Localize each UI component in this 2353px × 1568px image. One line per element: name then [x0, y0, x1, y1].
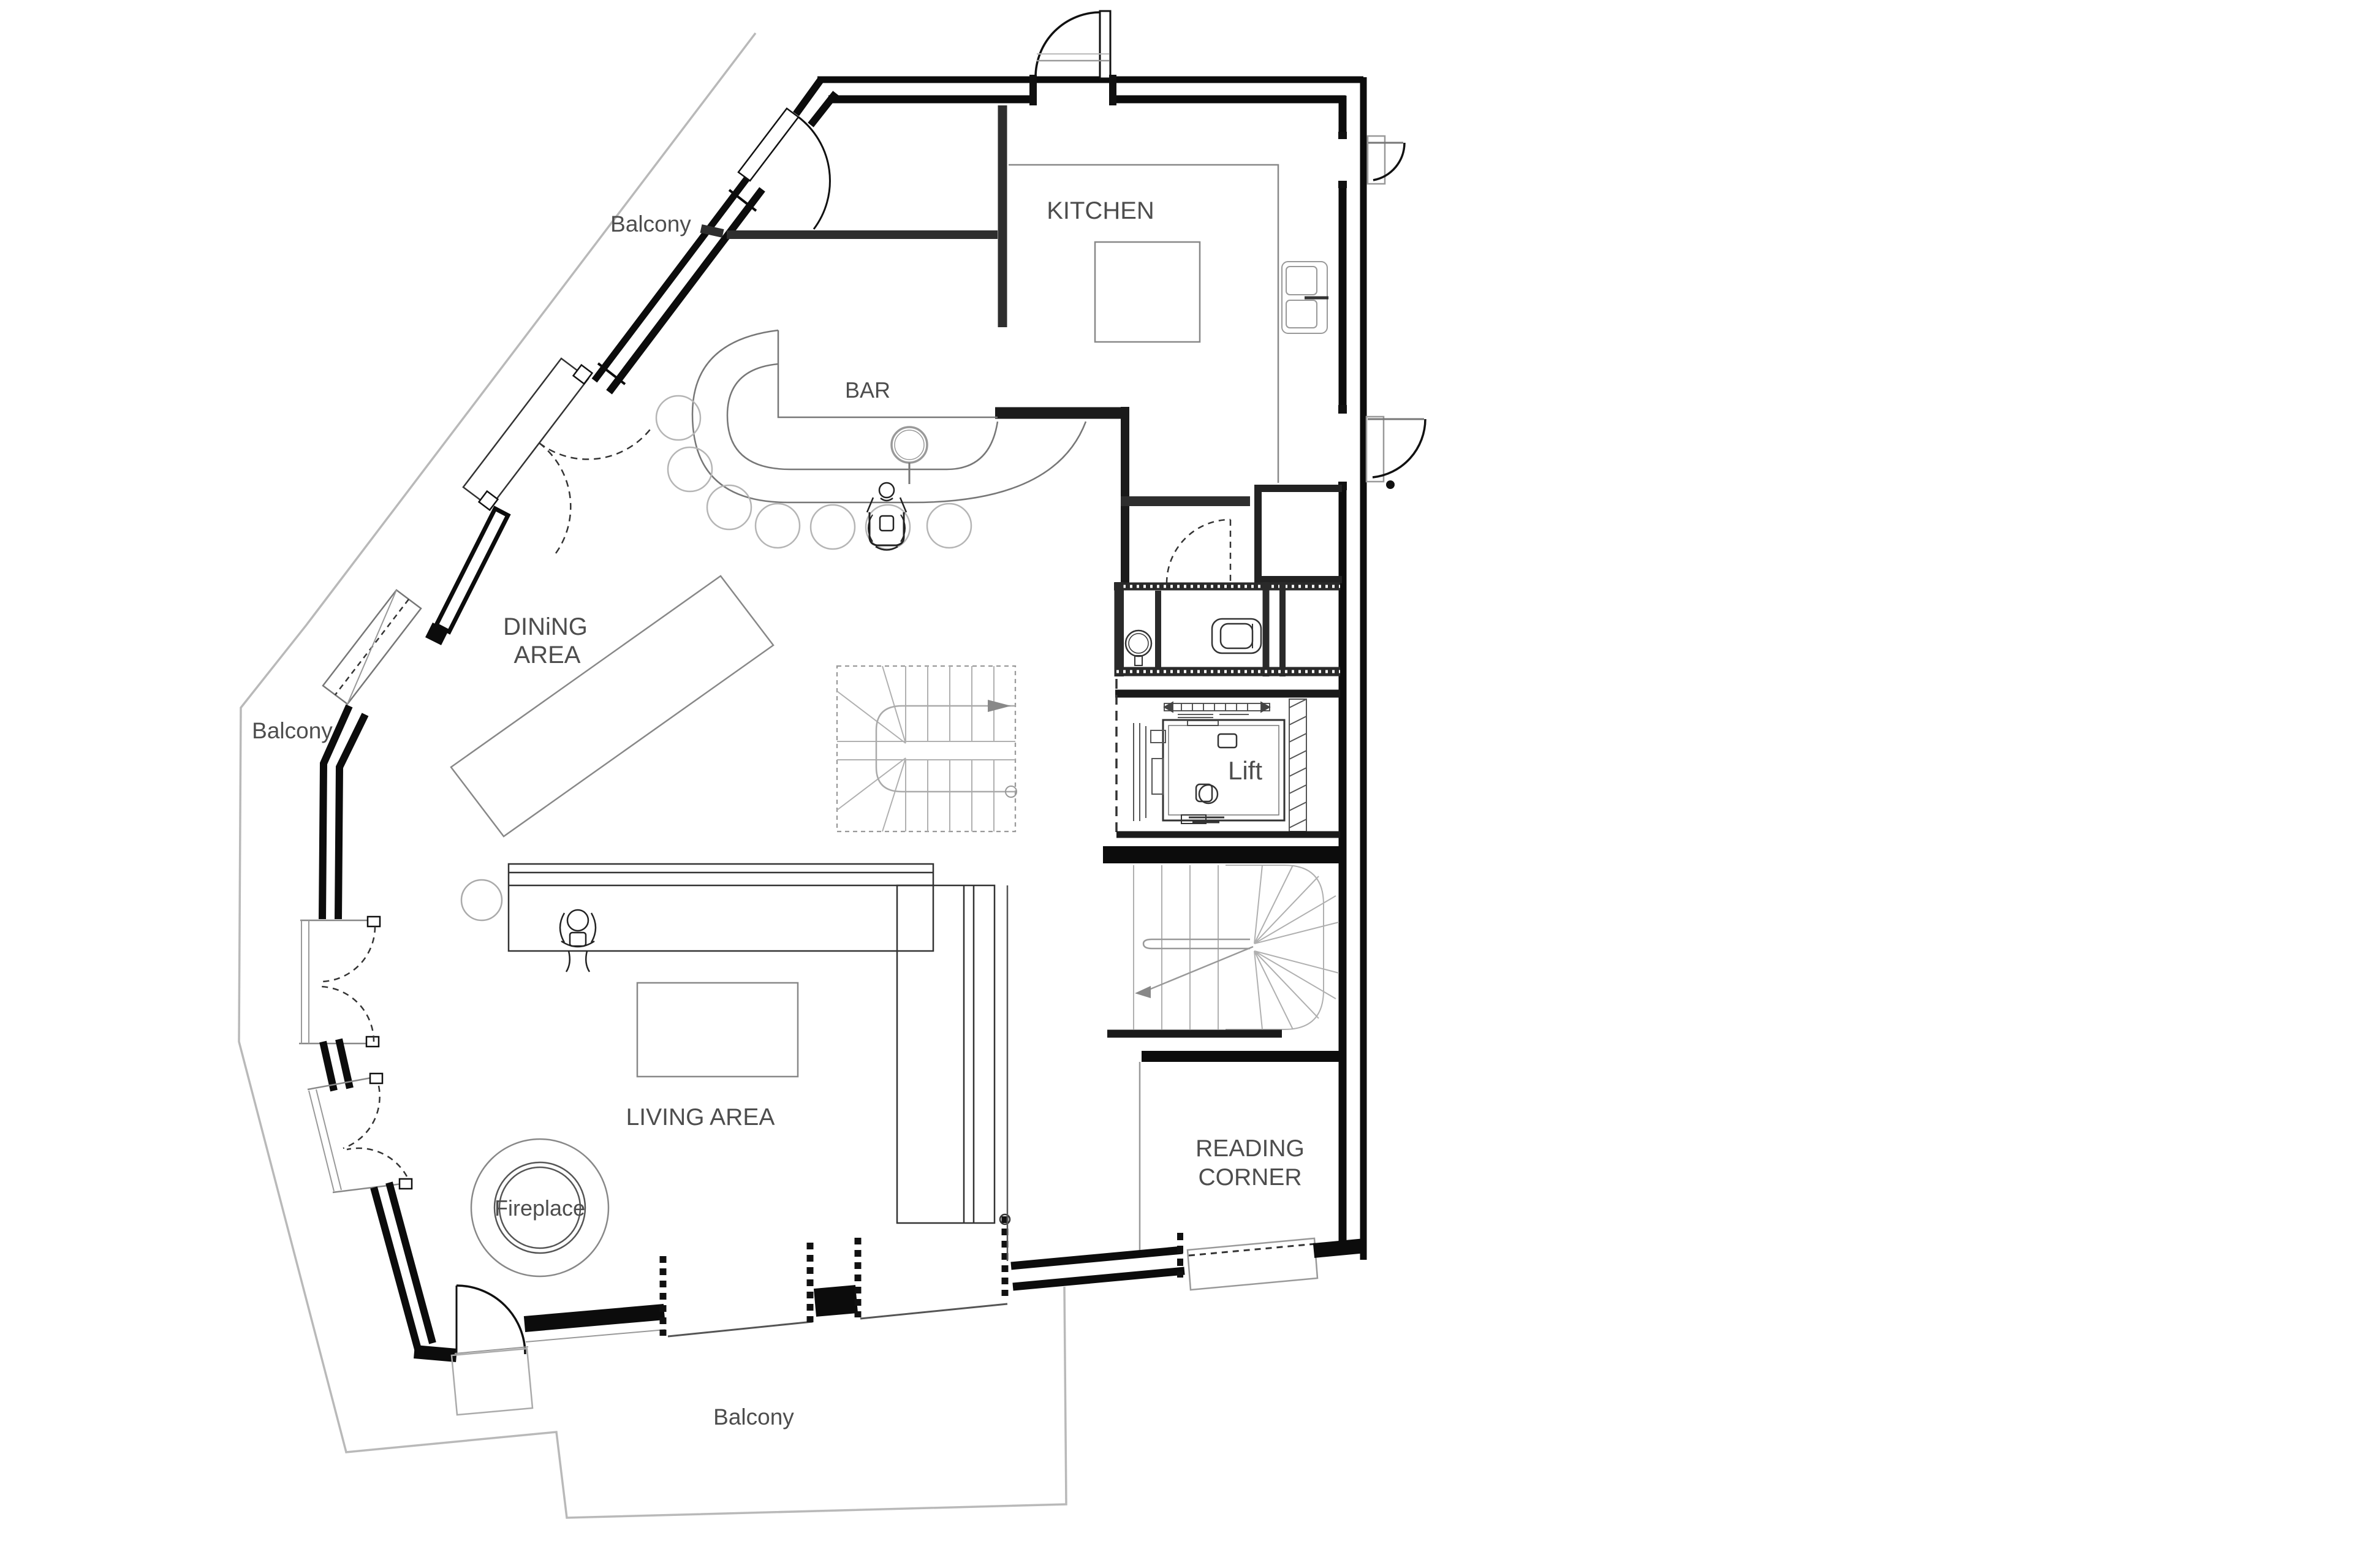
- svg-text:CORNER: CORNER: [1198, 1164, 1302, 1191]
- svg-text:Lift: Lift: [1228, 756, 1262, 785]
- svg-text:AREA: AREA: [514, 642, 581, 668]
- svg-text:READING: READING: [1195, 1135, 1305, 1162]
- svg-text:KITCHEN: KITCHEN: [1047, 197, 1154, 224]
- svg-text:DINiNG: DINiNG: [503, 613, 588, 640]
- svg-text:Fireplace: Fireplace: [494, 1195, 585, 1221]
- svg-text:LIVING AREA: LIVING AREA: [626, 1104, 775, 1131]
- svg-text:Balcony: Balcony: [252, 718, 333, 743]
- svg-text:BAR: BAR: [845, 377, 890, 403]
- svg-text:Balcony: Balcony: [713, 1404, 794, 1430]
- svg-text:Balcony: Balcony: [610, 211, 691, 237]
